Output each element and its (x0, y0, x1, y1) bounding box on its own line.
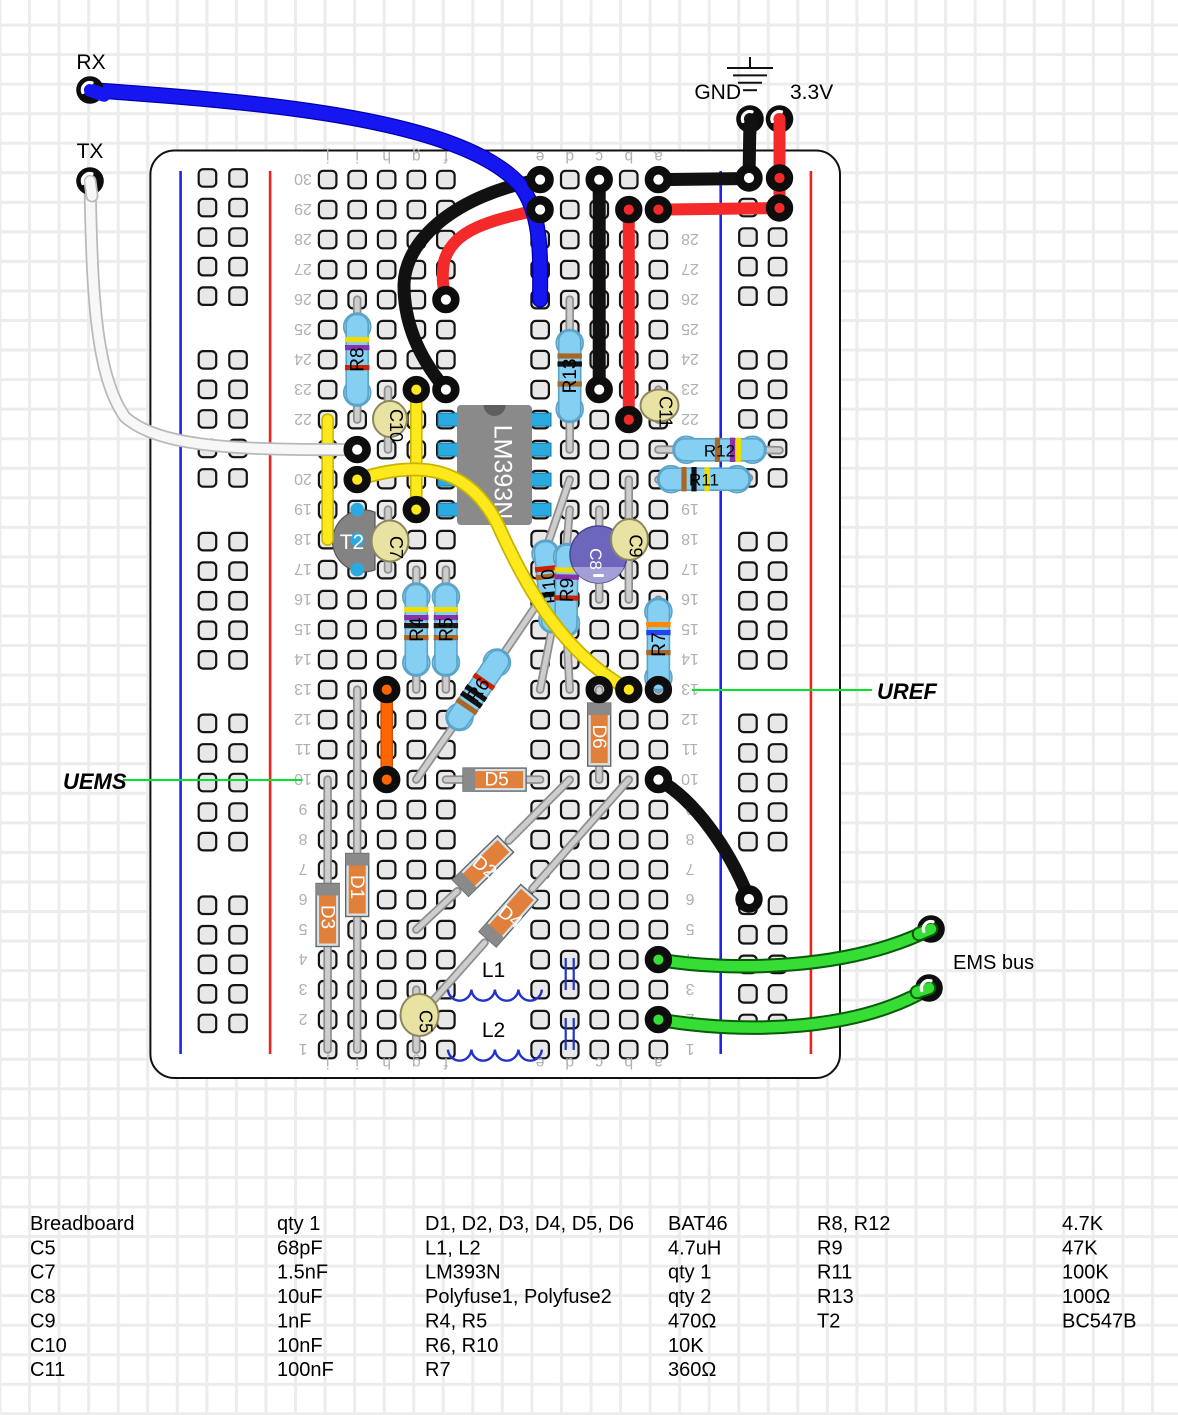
svg-text:D3: D3 (317, 905, 338, 929)
svg-text:8: 8 (685, 830, 694, 847)
svg-text:5: 5 (685, 920, 694, 937)
svg-text:22: 22 (294, 410, 312, 427)
svg-text:22: 22 (681, 410, 699, 427)
svg-text:4.7uH: 4.7uH (668, 1237, 721, 1259)
svg-text:qty 1: qty 1 (668, 1262, 711, 1284)
svg-text:L2: L2 (482, 1019, 505, 1042)
svg-text:R9: R9 (817, 1237, 843, 1259)
svg-text:TX: TX (77, 140, 104, 163)
svg-text:100K: 100K (1062, 1262, 1109, 1284)
svg-text:15: 15 (681, 620, 699, 637)
svg-text:10uF: 10uF (277, 1286, 323, 1308)
svg-text:100nF: 100nF (277, 1359, 334, 1381)
svg-text:15: 15 (294, 620, 312, 637)
svg-text:14: 14 (294, 650, 312, 667)
svg-text:3: 3 (685, 980, 694, 997)
svg-text:R13: R13 (560, 359, 581, 394)
svg-text:26: 26 (681, 290, 699, 307)
svg-text:3: 3 (298, 980, 307, 997)
svg-text:i: i (355, 1054, 358, 1071)
svg-text:4.7K: 4.7K (1062, 1213, 1104, 1235)
svg-text:e: e (536, 148, 545, 165)
svg-text:470Ω: 470Ω (668, 1310, 716, 1332)
svg-text:19: 19 (294, 500, 312, 517)
svg-text:100Ω: 100Ω (1062, 1286, 1110, 1308)
svg-text:17: 17 (681, 560, 699, 577)
svg-text:D5: D5 (484, 770, 508, 791)
svg-text:b: b (624, 1054, 633, 1071)
svg-text:d: d (565, 1054, 574, 1071)
svg-text:25: 25 (294, 320, 312, 337)
svg-text:qty 2: qty 2 (668, 1286, 711, 1308)
svg-text:12: 12 (294, 710, 312, 727)
svg-text:13: 13 (294, 680, 312, 697)
svg-text:4: 4 (298, 950, 307, 967)
svg-text:C8: C8 (30, 1286, 56, 1308)
svg-text:26: 26 (294, 290, 312, 307)
svg-text:D1, D2, D3, D4, D5, D6: D1, D2, D3, D4, D5, D6 (425, 1213, 634, 1235)
svg-text:C7: C7 (30, 1262, 56, 1284)
svg-text:29: 29 (294, 200, 312, 217)
svg-text:1: 1 (685, 1040, 694, 1057)
svg-text:28: 28 (294, 230, 312, 247)
svg-text:17: 17 (294, 560, 312, 577)
svg-text:6: 6 (298, 890, 307, 907)
svg-text:D6: D6 (588, 724, 609, 748)
svg-text:R4: R4 (407, 617, 428, 642)
svg-text:a: a (654, 1054, 663, 1071)
svg-text:6: 6 (685, 890, 694, 907)
svg-text:25: 25 (681, 320, 699, 337)
svg-text:R7: R7 (649, 632, 670, 656)
svg-text:14: 14 (681, 650, 699, 667)
svg-text:12: 12 (681, 710, 699, 727)
svg-text:R6, R10: R6, R10 (425, 1335, 498, 1357)
svg-text:11: 11 (682, 740, 699, 757)
svg-text:C7: C7 (386, 536, 406, 559)
svg-text:16: 16 (294, 590, 312, 607)
svg-text:19: 19 (681, 500, 699, 517)
svg-text:GND: GND (694, 81, 741, 104)
svg-text:EMS bus: EMS bus (953, 952, 1034, 974)
svg-text:UEMS: UEMS (63, 769, 127, 794)
svg-text:8: 8 (298, 830, 307, 847)
svg-text:30: 30 (294, 170, 312, 187)
svg-text:c: c (595, 1054, 603, 1071)
svg-text:13: 13 (681, 680, 699, 697)
svg-text:10: 10 (294, 770, 312, 787)
svg-text:C10: C10 (30, 1335, 67, 1357)
svg-text:T2: T2 (340, 531, 365, 554)
svg-text:R11: R11 (689, 471, 719, 490)
svg-text:7: 7 (298, 860, 307, 877)
svg-text:27: 27 (681, 260, 699, 277)
svg-text:h: h (382, 148, 391, 165)
svg-text:C10: C10 (386, 409, 406, 442)
svg-text:R5: R5 (436, 617, 457, 641)
svg-text:BAT46: BAT46 (668, 1213, 728, 1235)
svg-text:3.3V: 3.3V (790, 81, 833, 104)
svg-text:68pF: 68pF (277, 1237, 323, 1259)
svg-text:j: j (326, 148, 330, 165)
svg-text:d: d (565, 148, 574, 165)
svg-text:28: 28 (681, 230, 699, 247)
svg-text:C5: C5 (30, 1237, 56, 1259)
svg-text:C5: C5 (416, 1010, 436, 1033)
svg-text:D1: D1 (346, 875, 367, 899)
svg-text:j: j (326, 1054, 330, 1071)
svg-text:f: f (443, 1054, 448, 1071)
svg-text:16: 16 (681, 590, 699, 607)
svg-text:R13: R13 (817, 1286, 854, 1308)
svg-text:360Ω: 360Ω (668, 1359, 716, 1381)
svg-text:RX: RX (76, 51, 105, 74)
svg-text:27: 27 (294, 260, 312, 277)
svg-text:LM393N: LM393N (425, 1262, 501, 1284)
svg-text:23: 23 (681, 380, 699, 397)
svg-text:Breadboard: Breadboard (30, 1213, 135, 1235)
svg-text:5: 5 (298, 920, 307, 937)
svg-text:BC547B: BC547B (1062, 1310, 1137, 1332)
svg-text:1.5nF: 1.5nF (277, 1262, 328, 1284)
svg-text:47K: 47K (1062, 1237, 1098, 1259)
svg-text:24: 24 (681, 350, 699, 367)
svg-text:C9: C9 (626, 534, 646, 557)
svg-text:10K: 10K (668, 1335, 704, 1357)
svg-text:7: 7 (685, 860, 694, 877)
svg-text:R4, R5: R4, R5 (425, 1310, 487, 1332)
svg-text:i: i (355, 148, 358, 165)
svg-text:qty 1: qty 1 (277, 1213, 320, 1235)
svg-text:R8, R12: R8, R12 (817, 1213, 890, 1235)
svg-text:11: 11 (295, 740, 312, 757)
svg-text:h: h (382, 1054, 391, 1071)
svg-text:1: 1 (298, 1040, 307, 1057)
svg-text:Polyfuse1, Polyfuse2: Polyfuse1, Polyfuse2 (425, 1286, 612, 1308)
svg-text:L1, L2: L1, L2 (425, 1237, 481, 1259)
svg-text:10: 10 (681, 770, 699, 787)
svg-text:C9: C9 (30, 1310, 56, 1332)
svg-text:2: 2 (298, 1010, 307, 1027)
svg-text:C8: C8 (586, 548, 605, 570)
svg-text:23: 23 (294, 380, 312, 397)
svg-text:R7: R7 (425, 1359, 451, 1381)
svg-text:g: g (412, 148, 421, 165)
svg-text:10nF: 10nF (277, 1335, 323, 1357)
svg-text:18: 18 (294, 530, 312, 547)
svg-text:C11: C11 (30, 1359, 65, 1381)
svg-text:C11: C11 (656, 396, 676, 428)
svg-text:L1: L1 (482, 959, 505, 982)
svg-text:UREF: UREF (877, 679, 937, 704)
svg-text:b: b (624, 148, 633, 165)
svg-text:R9: R9 (557, 578, 578, 603)
svg-text:20: 20 (294, 470, 312, 487)
svg-text:9: 9 (298, 800, 307, 817)
svg-text:a: a (654, 148, 663, 165)
svg-text:T2: T2 (817, 1310, 840, 1332)
svg-text:R8: R8 (348, 347, 369, 371)
svg-text:R12: R12 (704, 441, 735, 460)
svg-text:g: g (412, 1054, 421, 1071)
svg-text:24: 24 (294, 350, 312, 367)
svg-text:R11: R11 (817, 1262, 852, 1284)
svg-text:18: 18 (681, 530, 699, 547)
svg-text:1nF: 1nF (277, 1310, 311, 1332)
svg-text:c: c (595, 148, 603, 165)
